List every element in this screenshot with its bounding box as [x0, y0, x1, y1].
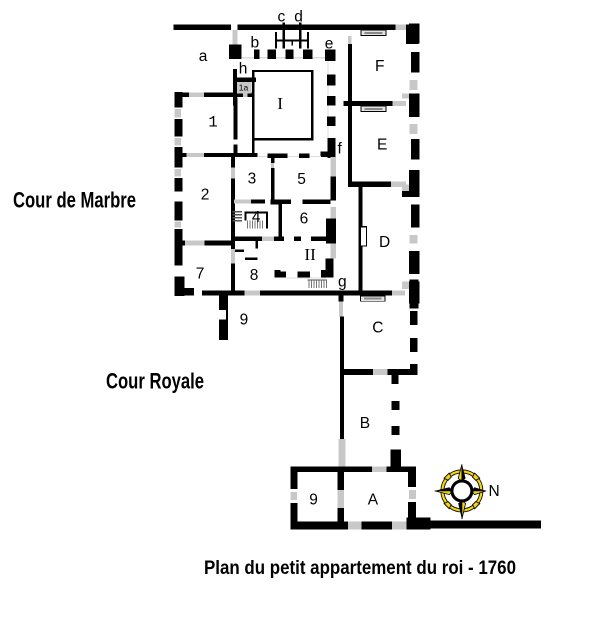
- svg-text:D: D: [379, 234, 390, 251]
- svg-text:A: A: [368, 491, 379, 508]
- svg-text:C: C: [372, 320, 383, 337]
- svg-text:F: F: [375, 58, 384, 75]
- svg-text:Plan du petit appartement du r: Plan du petit appartement du roi - 1760: [204, 557, 516, 579]
- svg-text:5: 5: [297, 171, 306, 188]
- svg-text:8: 8: [250, 267, 259, 284]
- svg-text:e: e: [325, 36, 334, 53]
- svg-text:a: a: [199, 48, 208, 65]
- svg-text:b: b: [251, 35, 260, 52]
- svg-text:c: c: [278, 9, 286, 26]
- svg-text:6: 6: [300, 211, 309, 228]
- svg-text:E: E: [377, 137, 387, 154]
- svg-text:4: 4: [252, 209, 261, 226]
- svg-text:h: h: [239, 60, 248, 77]
- svg-text:9: 9: [309, 492, 318, 509]
- svg-text:1a: 1a: [239, 83, 249, 93]
- svg-text:7: 7: [196, 266, 205, 283]
- svg-text:II: II: [304, 245, 316, 264]
- svg-text:B: B: [360, 415, 370, 432]
- svg-text:Cour Royale: Cour Royale: [106, 369, 204, 394]
- svg-text:9: 9: [240, 312, 249, 329]
- svg-text:Cour de Marbre: Cour de Marbre: [13, 187, 136, 212]
- svg-text:2: 2: [201, 186, 210, 203]
- svg-text:d: d: [294, 9, 303, 26]
- svg-text:g: g: [338, 274, 347, 291]
- svg-text:3: 3: [248, 171, 257, 188]
- svg-text:I: I: [277, 94, 283, 113]
- svg-text:N: N: [489, 483, 500, 500]
- svg-text:1: 1: [208, 114, 217, 132]
- svg-text:f: f: [338, 140, 343, 157]
